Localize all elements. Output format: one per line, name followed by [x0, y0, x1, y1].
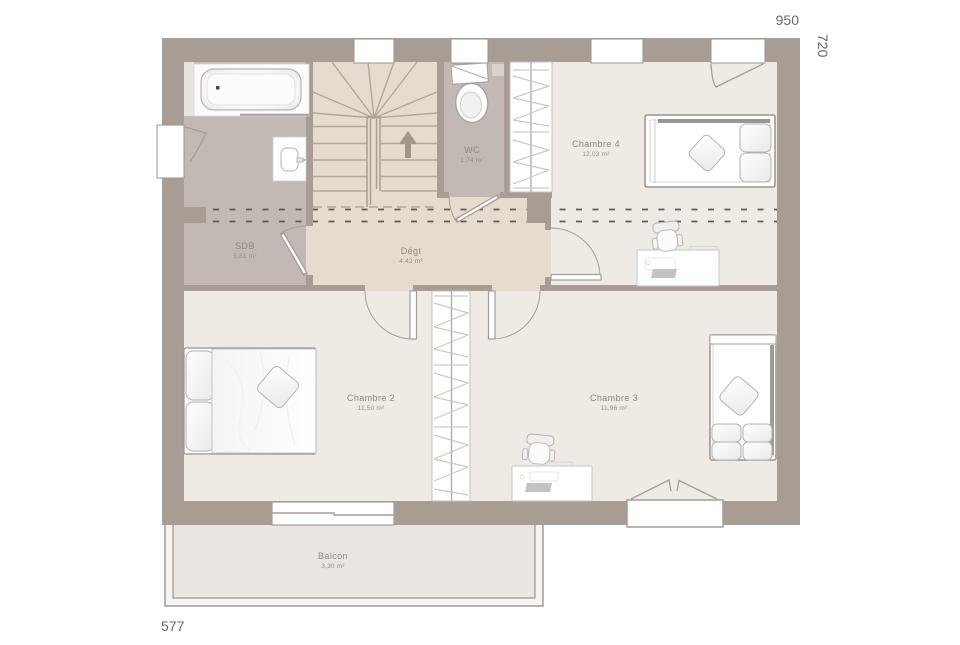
svg-text:WC: WC [464, 145, 480, 155]
svg-text:12,03 m²: 12,03 m² [582, 151, 610, 158]
svg-text:Chambre 4: Chambre 4 [572, 139, 620, 149]
svg-text:3,30 m²: 3,30 m² [321, 563, 345, 570]
svg-text:Balcon: Balcon [318, 551, 348, 561]
svg-text:11,50 m²: 11,50 m² [358, 405, 385, 412]
svg-text:577: 577 [161, 618, 185, 634]
svg-text:1,74 m²: 1,74 m² [460, 157, 484, 164]
svg-text:SDB: SDB [235, 241, 255, 251]
svg-text:4,42 m²: 4,42 m² [399, 258, 423, 265]
svg-text:720: 720 [815, 34, 831, 58]
svg-text:Chambre 3: Chambre 3 [590, 393, 638, 403]
svg-text:11,96 m²: 11,96 m² [601, 405, 628, 412]
svg-text:950: 950 [776, 12, 800, 28]
svg-text:5,81 m²: 5,81 m² [233, 253, 257, 260]
svg-text:Chambre 2: Chambre 2 [347, 393, 395, 403]
svg-text:Dégt: Dégt [401, 246, 422, 256]
